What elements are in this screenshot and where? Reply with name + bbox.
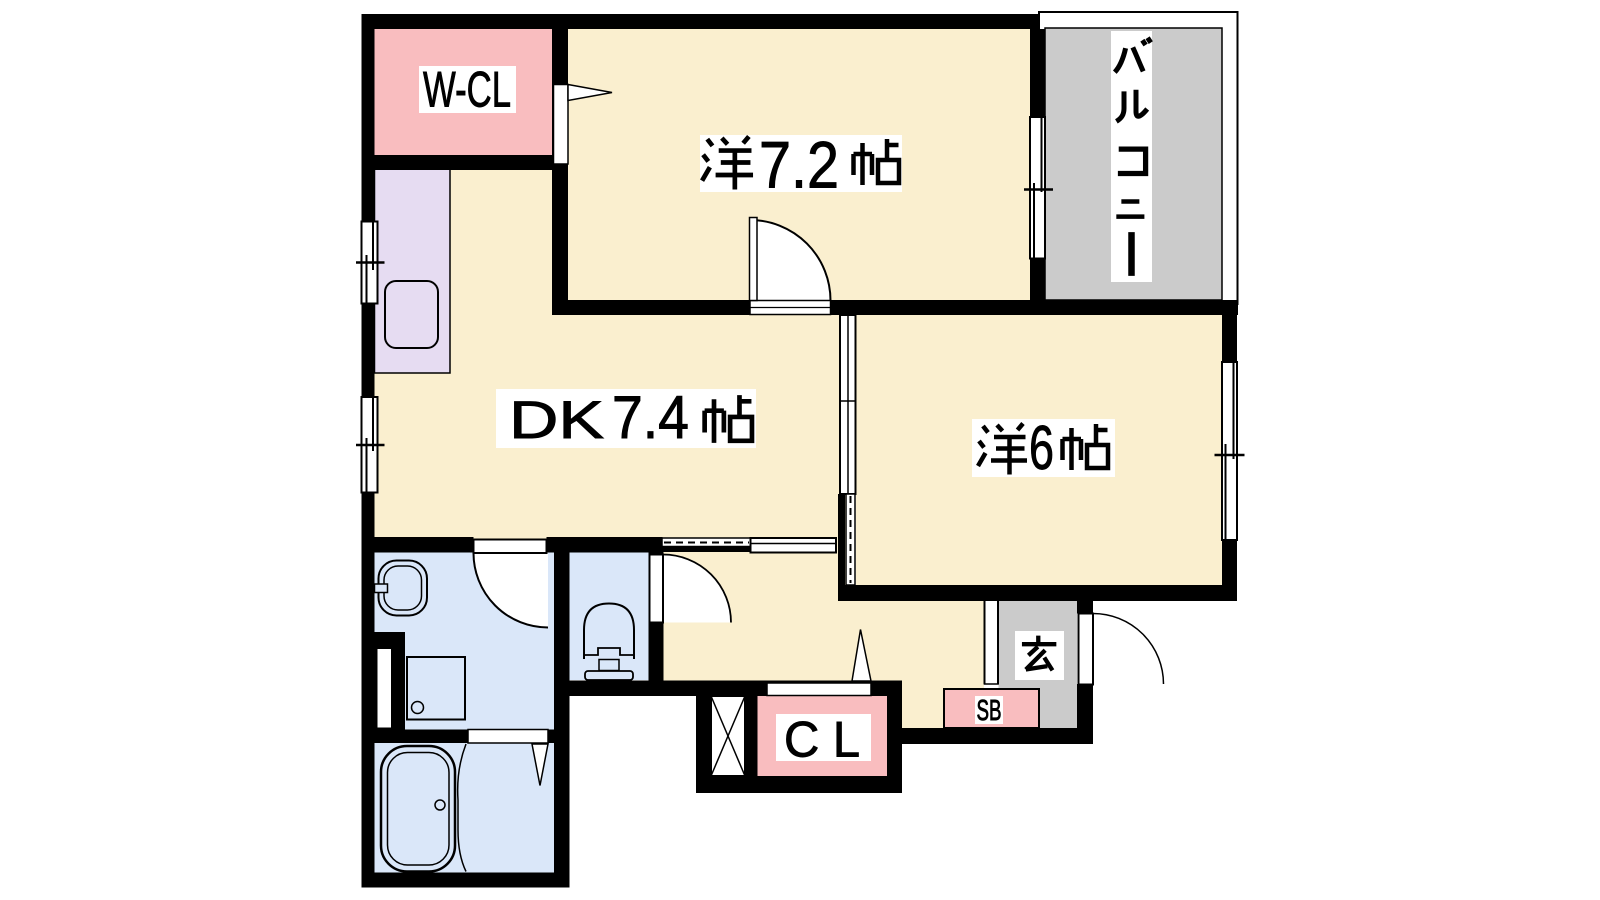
svg-text:7.2: 7.2 <box>759 128 839 202</box>
svg-text:6: 6 <box>1029 414 1054 483</box>
svg-text:7.4: 7.4 <box>612 384 689 451</box>
svg-text:W-CL: W-CL <box>423 62 511 118</box>
svg-text:DK: DK <box>509 391 604 450</box>
svg-text:C L: C L <box>784 712 860 768</box>
svg-text:SB: SB <box>977 695 1002 727</box>
